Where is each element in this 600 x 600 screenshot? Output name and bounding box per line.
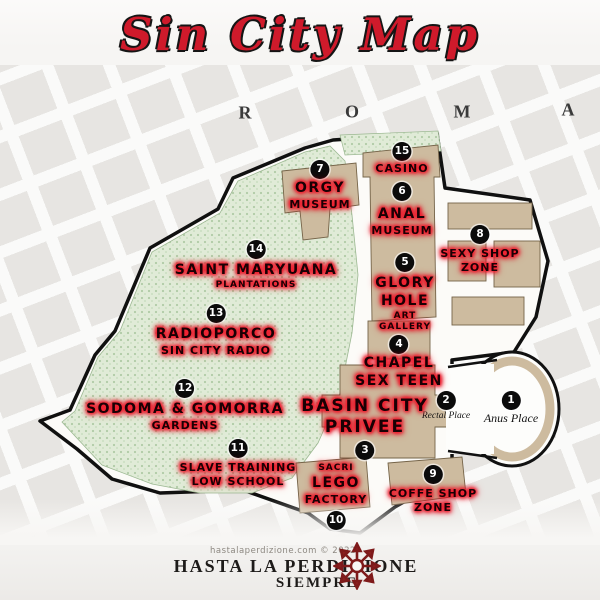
marker-number: 10 — [327, 511, 346, 530]
marker-label: SACRI — [318, 463, 353, 474]
footer: hastalaperdizione.com © 2022 HASTA LA PE… — [0, 542, 600, 600]
footer-url: hastalaperdizione.com © 2022 — [136, 546, 430, 556]
marker-label: GLORY — [375, 275, 434, 292]
marker-label: HOLE — [381, 293, 429, 310]
marker-sacri-lego-factory[interactable]: SACRI LEGO FACTORY 10 — [305, 463, 368, 530]
marker-anus-place[interactable]: 1 Anus Place — [484, 391, 538, 426]
marker-number: 5 — [396, 253, 415, 272]
marker-label: COFFE SHOP — [389, 487, 477, 500]
marker-number: 9 — [424, 465, 443, 484]
marker-label: SEX TEEN — [355, 373, 443, 390]
marker-label: LOW SCHOOL — [192, 475, 285, 488]
marker-label: PLANTATIONS — [216, 280, 297, 291]
marker-label: Anus Place — [484, 411, 538, 426]
marker-label: BASIN CITY — [301, 396, 429, 416]
marker-orgy-museum[interactable]: 7 ORGY MUSEUM — [289, 160, 350, 211]
footer-tagline: SIEMPRE — [178, 575, 456, 592]
marker-number: 3 — [355, 441, 374, 460]
marker-number: 12 — [175, 379, 194, 398]
marker-number: 4 — [390, 335, 409, 354]
marker-number: 8 — [470, 225, 489, 244]
marker-coffe-shop-zone[interactable]: 9 COFFE SHOP ZONE — [389, 465, 477, 514]
marker-label: FACTORY — [305, 493, 368, 506]
marker-number: 14 — [246, 240, 265, 259]
marker-number: 11 — [228, 439, 247, 458]
chaos-star-icon — [333, 542, 381, 590]
map-area: R O M A — [0, 65, 600, 545]
footer-brand: HASTA LA PERDIZIONE — [136, 556, 456, 577]
marker-anal-museum[interactable]: 6 ANAL MUSEUM — [371, 182, 432, 237]
vatican-territory-map — [0, 65, 600, 545]
marker-casino[interactable]: 15 CASINO — [375, 142, 428, 175]
marker-label: CASINO — [375, 162, 428, 175]
marker-number: 7 — [310, 160, 329, 179]
marker-label: ZONE — [461, 261, 499, 274]
marker-label: CHAPEL — [364, 355, 435, 372]
marker-number: 2 — [436, 391, 455, 410]
marker-number: 13 — [207, 304, 226, 323]
marker-number: 6 — [392, 182, 411, 201]
marker-label: GALLERY — [379, 322, 431, 333]
borgo-building-4 — [452, 297, 524, 325]
marker-label: GARDENS — [152, 419, 219, 432]
marker-sexy-shop-zone[interactable]: 8 SEXY SHOP ZONE — [440, 225, 519, 274]
marker-label: SODOMA & GOMORRA — [86, 401, 284, 418]
marker-radioporco-sin-city-radio[interactable]: 13 RADIOPORCO SIN CITY RADIO — [156, 304, 276, 357]
marker-number: 15 — [392, 142, 411, 161]
marker-label: PRIVEE — [325, 417, 405, 437]
marker-label: RADIOPORCO — [156, 326, 276, 343]
marker-label: ZONE — [414, 501, 452, 514]
marker-label: MUSEUM — [289, 198, 350, 211]
marker-label: SAINT MARYUANA — [175, 262, 338, 279]
marker-label: ORGY — [295, 180, 345, 197]
marker-saint-maryuana-plantations[interactable]: 14 SAINT MARYUANA PLANTATIONS — [175, 240, 338, 291]
marker-label: ANAL — [378, 206, 426, 223]
marker-glory-hole-art-gallery[interactable]: 5 GLORY HOLE ART GALLERY — [375, 253, 434, 333]
marker-slave-training-low-school[interactable]: 11 SLAVE TRAINING LOW SCHOOL — [180, 439, 297, 488]
marker-label: SLAVE TRAINING — [180, 461, 297, 474]
marker-label: ART — [394, 311, 417, 322]
page: Sin City Map R O M A — [0, 0, 600, 600]
marker-label: SIN CITY RADIO — [161, 344, 271, 357]
marker-chapel-sex-teen[interactable]: 4 CHAPEL SEX TEEN — [355, 335, 443, 390]
marker-label: MUSEUM — [371, 224, 432, 237]
marker-label: SEXY SHOP — [440, 247, 519, 260]
marker-number: 1 — [501, 391, 520, 410]
marker-sodoma-gomorra-gardens[interactable]: 12 SODOMA & GOMORRA GARDENS — [86, 379, 284, 432]
marker-basin-city-privee[interactable]: BASIN CITY PRIVEE 3 — [301, 396, 429, 460]
page-title: Sin City Map — [0, 8, 600, 61]
marker-label: LEGO — [312, 475, 360, 492]
